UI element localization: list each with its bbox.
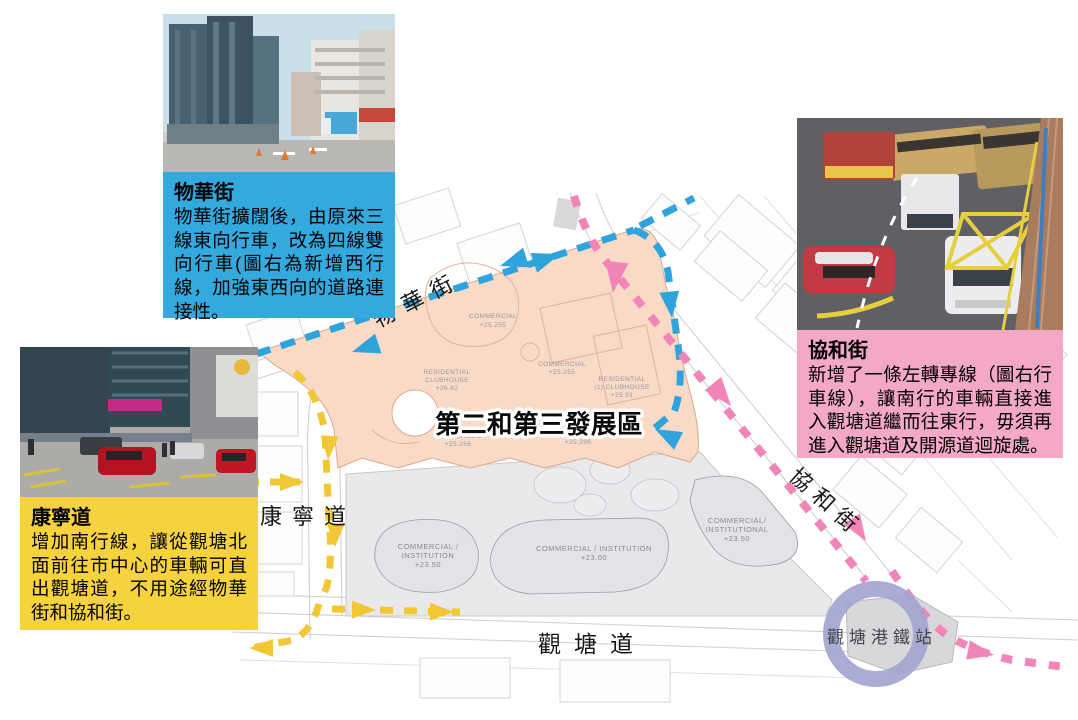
callout-title-hong-ning: 康寧道 [31, 506, 247, 530]
hong-ning-photo-art [20, 347, 258, 497]
infographic-canvas: COMMERCIAL +25.255 COMMERCIAL +25.255 RE… [0, 0, 1078, 720]
street-label-kwun-tong-road: 觀塘道 [538, 631, 646, 657]
callout-title-mut-wah: 物華街 [174, 181, 384, 205]
mut-wah-street-photo [163, 14, 395, 172]
hong-ning-road-photo [20, 347, 258, 497]
svg-text:COMMERCIAL/: COMMERCIAL/ [708, 516, 767, 525]
svg-text:+23.50: +23.50 [415, 560, 441, 569]
svg-text:+25.255: +25.255 [480, 322, 506, 329]
mtr-station-label: 觀塘港鐵站 [827, 628, 937, 647]
callout-body-mut-wah: 物華街擴闊後，由原來三線東向行車，改為四線雙向行車(圖右為新增西行線，加強東西向… [174, 205, 384, 323]
svg-text:INSTITUTIONAL: INSTITUTIONAL [706, 525, 769, 534]
svg-text:RESIDENTIAL: RESIDENTIAL [423, 369, 470, 376]
mut-wah-photo-art [163, 14, 395, 172]
street-label-hong-ning: 康寧道 [260, 504, 356, 529]
red-taxi [803, 246, 895, 294]
svg-text:(1) CLUBHOUSE: (1) CLUBHOUSE [594, 384, 650, 391]
svg-text:+25.256: +25.256 [445, 441, 471, 448]
hip-wo-street-photo [797, 118, 1063, 330]
svg-text:+23.50: +23.50 [724, 534, 750, 543]
hong-ning-road-callout: 康寧道 增加南行線，讓從觀塘北面前往市中心的車輛可直出觀塘道，不用途經物華街和協… [20, 497, 258, 630]
svg-text:COMMERCIAL / INSTITUTION: COMMERCIAL / INSTITUTION [536, 544, 652, 553]
white-lorry [901, 174, 959, 230]
svg-text:+25.91: +25.91 [611, 392, 633, 399]
callout-body-hong-ning: 增加南行線，讓從觀塘北面前往市中心的車輛可直出觀塘道，不用途經物華街和協和街。 [31, 530, 247, 625]
svg-text:+25.255: +25.255 [549, 369, 575, 376]
svg-text:+23.00: +23.00 [581, 553, 607, 562]
development-area-title: 第二和第三發展區 [435, 410, 643, 439]
hip-wo-photo-art [797, 118, 1063, 330]
svg-text:COMMERCIAL: COMMERCIAL [469, 313, 517, 320]
svg-text:INSTITUTION: INSTITUTION [402, 551, 455, 560]
callout-title-hip-wo: 協和街 [808, 339, 1052, 363]
svg-text:CLUBHOUSE: CLUBHOUSE [425, 377, 469, 384]
mut-wah-street-callout: 物華街 物華街擴闊後，由原來三線東向行車，改為四線雙向行車(圖右為新增西行線，加… [163, 172, 395, 318]
svg-text:+26.62: +26.62 [436, 385, 458, 392]
callout-body-hip-wo: 新增了一條左轉專線（圖右行車線），讓南行的車輛直接進入觀塘道繼而往東行，毋須再進… [808, 363, 1052, 458]
hip-wo-street-callout: 協和街 新增了一條左轉專線（圖右行車線），讓南行的車輛直接進入觀塘道繼而往東行，… [797, 330, 1063, 458]
svg-text:COMMERCIAL: COMMERCIAL [538, 361, 586, 368]
svg-text:COMMERCIAL /: COMMERCIAL / [398, 542, 459, 551]
svg-text:RESIDENTIAL: RESIDENTIAL [598, 376, 645, 383]
svg-text:+25.396: +25.396 [565, 439, 591, 446]
